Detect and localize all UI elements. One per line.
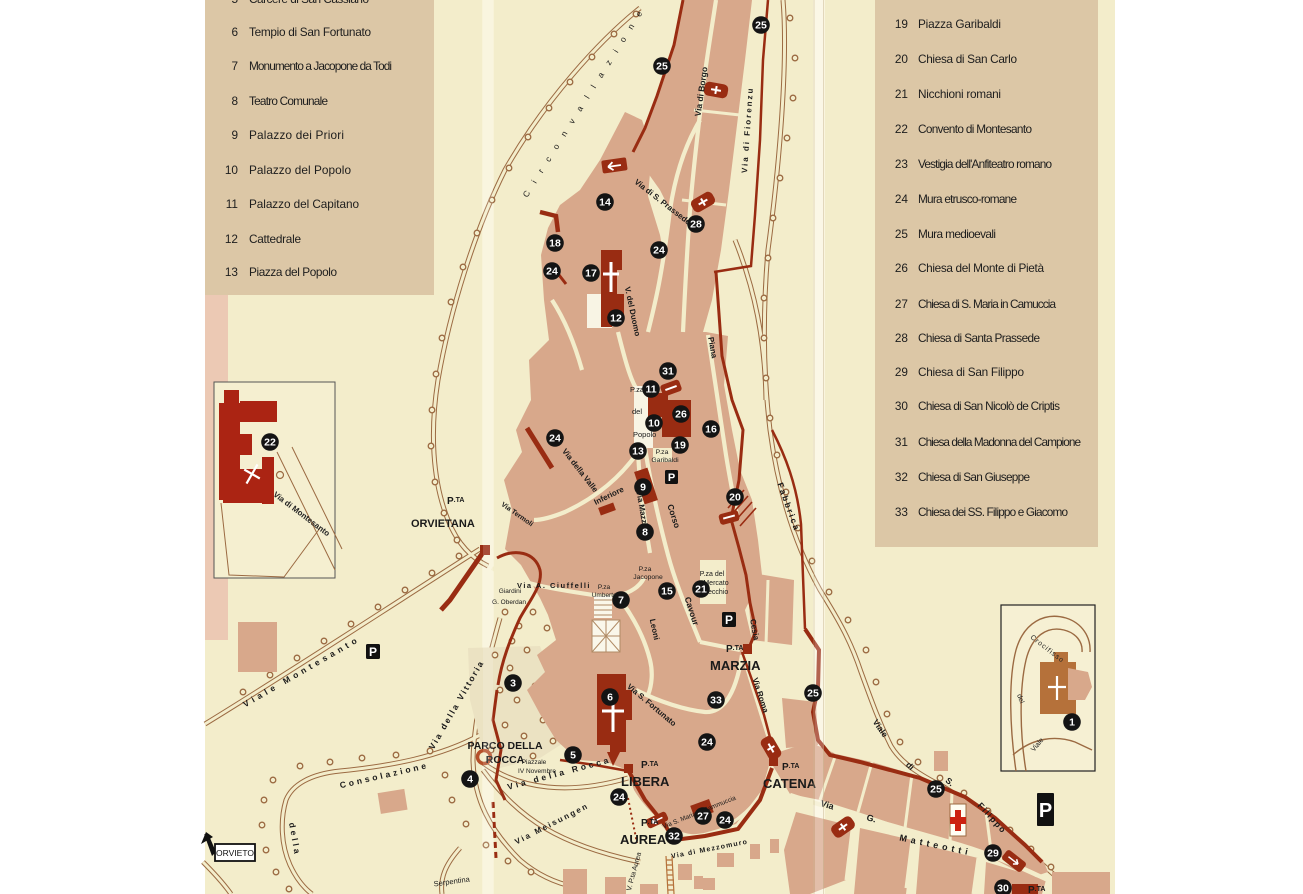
svg-text:25: 25: [930, 784, 942, 796]
svg-text:28: 28: [690, 219, 702, 231]
svg-text:Via A. Ciuffelli: Via A. Ciuffelli: [517, 581, 591, 590]
svg-text:Chiesa di San Nicolò de Cripti: Chiesa di San Nicolò de Criptis: [918, 399, 1060, 413]
svg-text:Chiesa dei SS. Filippo e Giaco: Chiesa dei SS. Filippo e Giacomo: [918, 505, 1068, 519]
svg-text:Piazza del Popolo: Piazza del Popolo: [249, 265, 337, 279]
svg-text:24: 24: [546, 266, 558, 278]
svg-text:10: 10: [225, 163, 239, 177]
svg-text:Chiesa di S. Maria in Camuccia: Chiesa di S. Maria in Camuccia: [918, 297, 1056, 311]
svg-text:ORVIETANA: ORVIETANA: [411, 518, 475, 530]
svg-text:Mura etrusco-romane: Mura etrusco-romane: [918, 192, 1017, 206]
svg-text:7: 7: [618, 595, 624, 607]
svg-text:Jacopone: Jacopone: [633, 574, 663, 581]
svg-text:11: 11: [645, 384, 656, 396]
svg-text:26: 26: [675, 409, 687, 421]
svg-text:20: 20: [729, 492, 741, 504]
svg-text:10: 10: [648, 418, 660, 430]
svg-text:7: 7: [231, 59, 238, 73]
svg-text:6: 6: [231, 25, 238, 39]
svg-text:P.za: P.za: [656, 449, 669, 456]
svg-text:12: 12: [610, 313, 622, 325]
svg-text:Tempio di San Fortunato: Tempio di San Fortunato: [249, 25, 371, 39]
svg-text:24: 24: [653, 245, 665, 257]
svg-text:P: P: [369, 645, 377, 659]
svg-text:P.za: P.za: [598, 584, 611, 591]
svg-text:32: 32: [895, 470, 908, 484]
svg-text:Chiesa di Santa Prassede: Chiesa di Santa Prassede: [918, 331, 1040, 345]
svg-text:22: 22: [264, 437, 276, 449]
svg-text:3: 3: [510, 678, 516, 690]
svg-text:1: 1: [1069, 717, 1075, 729]
svg-text:27: 27: [895, 297, 908, 311]
svg-text:Chiesa di San Carlo: Chiesa di San Carlo: [918, 52, 1017, 66]
svg-text:Nicchioni romani: Nicchioni romani: [918, 87, 1001, 101]
svg-text:5: 5: [570, 750, 576, 762]
svg-text:17: 17: [585, 268, 597, 280]
svg-text:Monumento a Jacopone da Todi: Monumento a Jacopone da Todi: [249, 59, 392, 73]
svg-text:25: 25: [656, 61, 668, 73]
svg-text:IV Novembre: IV Novembre: [518, 768, 556, 775]
svg-text:22: 22: [895, 122, 908, 136]
svg-text:31: 31: [662, 366, 674, 378]
svg-text:23: 23: [895, 157, 909, 171]
svg-text:14: 14: [599, 197, 611, 209]
svg-text:33: 33: [895, 505, 909, 519]
svg-text:Convento di Montesanto: Convento di Montesanto: [918, 122, 1032, 136]
svg-text:MARZIA: MARZIA: [710, 658, 761, 673]
svg-text:25: 25: [895, 227, 909, 241]
svg-text:Chiesa di San Giuseppe: Chiesa di San Giuseppe: [918, 470, 1030, 484]
svg-text:Palazzo dei Priori: Palazzo dei Priori: [249, 128, 344, 142]
svg-text:33: 33: [710, 695, 722, 707]
svg-text:13: 13: [225, 265, 239, 279]
svg-text:9: 9: [231, 128, 238, 142]
svg-text:Cattedrale: Cattedrale: [249, 232, 301, 246]
svg-text:27: 27: [697, 811, 709, 823]
svg-text:P: P: [725, 613, 733, 627]
svg-text:Mura medioevali: Mura medioevali: [918, 227, 996, 241]
svg-text:LIBERA: LIBERA: [621, 774, 670, 789]
svg-text:Giardini: Giardini: [499, 588, 521, 595]
svg-text:Teatro Comunale: Teatro Comunale: [249, 94, 328, 108]
svg-text:19: 19: [674, 440, 686, 452]
svg-text:P.za del: P.za del: [700, 571, 725, 578]
svg-text:CATENA: CATENA: [763, 776, 817, 791]
svg-text:18: 18: [549, 238, 561, 250]
svg-text:24: 24: [613, 792, 625, 804]
svg-text:31: 31: [895, 435, 908, 449]
svg-text:5: 5: [231, 0, 238, 6]
svg-text:25: 25: [755, 20, 767, 32]
svg-text:11: 11: [226, 197, 238, 211]
svg-text:Chiesa del Monte di Pietà: Chiesa del Monte di Pietà: [918, 261, 1044, 275]
svg-text:16: 16: [705, 424, 717, 436]
svg-text:29: 29: [987, 848, 999, 860]
svg-text:30: 30: [895, 399, 909, 413]
svg-text:26: 26: [895, 261, 909, 275]
svg-text:Piazza Garibaldi: Piazza Garibaldi: [918, 17, 1001, 31]
svg-text:PARCO DELLA: PARCO DELLA: [467, 740, 542, 752]
svg-text:24: 24: [895, 192, 909, 206]
svg-text:P: P: [668, 472, 675, 484]
svg-text:25: 25: [807, 688, 819, 700]
svg-text:Chiesa della Madonna del Campi: Chiesa della Madonna del Campione: [918, 435, 1081, 449]
svg-text:Palazzo del Capitano: Palazzo del Capitano: [249, 197, 359, 211]
svg-text:21: 21: [895, 87, 908, 101]
svg-text:24: 24: [719, 815, 731, 827]
svg-text:15: 15: [661, 586, 673, 598]
svg-text:8: 8: [642, 527, 648, 539]
svg-text:P.TA: P.TA: [1028, 885, 1045, 894]
svg-text:Chiesa di San Filippo: Chiesa di San Filippo: [918, 365, 1024, 379]
svg-text:Palazzo del Popolo: Palazzo del Popolo: [249, 163, 351, 177]
svg-text:Vestigia dell'Anfiteatro roman: Vestigia dell'Anfiteatro romano: [918, 157, 1052, 171]
svg-text:4: 4: [467, 774, 473, 786]
svg-text:21: 21: [695, 584, 707, 596]
svg-text:Carcere di San Cassiano: Carcere di San Cassiano: [249, 0, 369, 6]
svg-text:24: 24: [549, 433, 561, 445]
svg-text:6: 6: [607, 692, 613, 704]
svg-text:9: 9: [640, 482, 646, 494]
svg-text:del: del: [632, 407, 642, 416]
svg-text:Piazzale: Piazzale: [522, 759, 547, 766]
svg-text:8: 8: [231, 94, 238, 108]
svg-text:19: 19: [895, 17, 908, 31]
svg-text:28: 28: [895, 331, 909, 345]
svg-text:29: 29: [895, 365, 908, 379]
svg-text:P: P: [1039, 800, 1052, 822]
svg-text:32: 32: [668, 831, 680, 843]
svg-text:ORVIETO: ORVIETO: [216, 848, 254, 858]
svg-text:30: 30: [997, 883, 1009, 894]
svg-text:AUREA: AUREA: [620, 832, 667, 847]
svg-text:Garibaldi: Garibaldi: [651, 457, 679, 464]
svg-text:G. Oberdan: G. Oberdan: [492, 599, 526, 606]
svg-text:P.za: P.za: [639, 566, 652, 573]
svg-text:24: 24: [701, 737, 713, 749]
svg-text:20: 20: [895, 52, 909, 66]
svg-text:13: 13: [632, 446, 644, 458]
svg-text:12: 12: [225, 232, 238, 246]
